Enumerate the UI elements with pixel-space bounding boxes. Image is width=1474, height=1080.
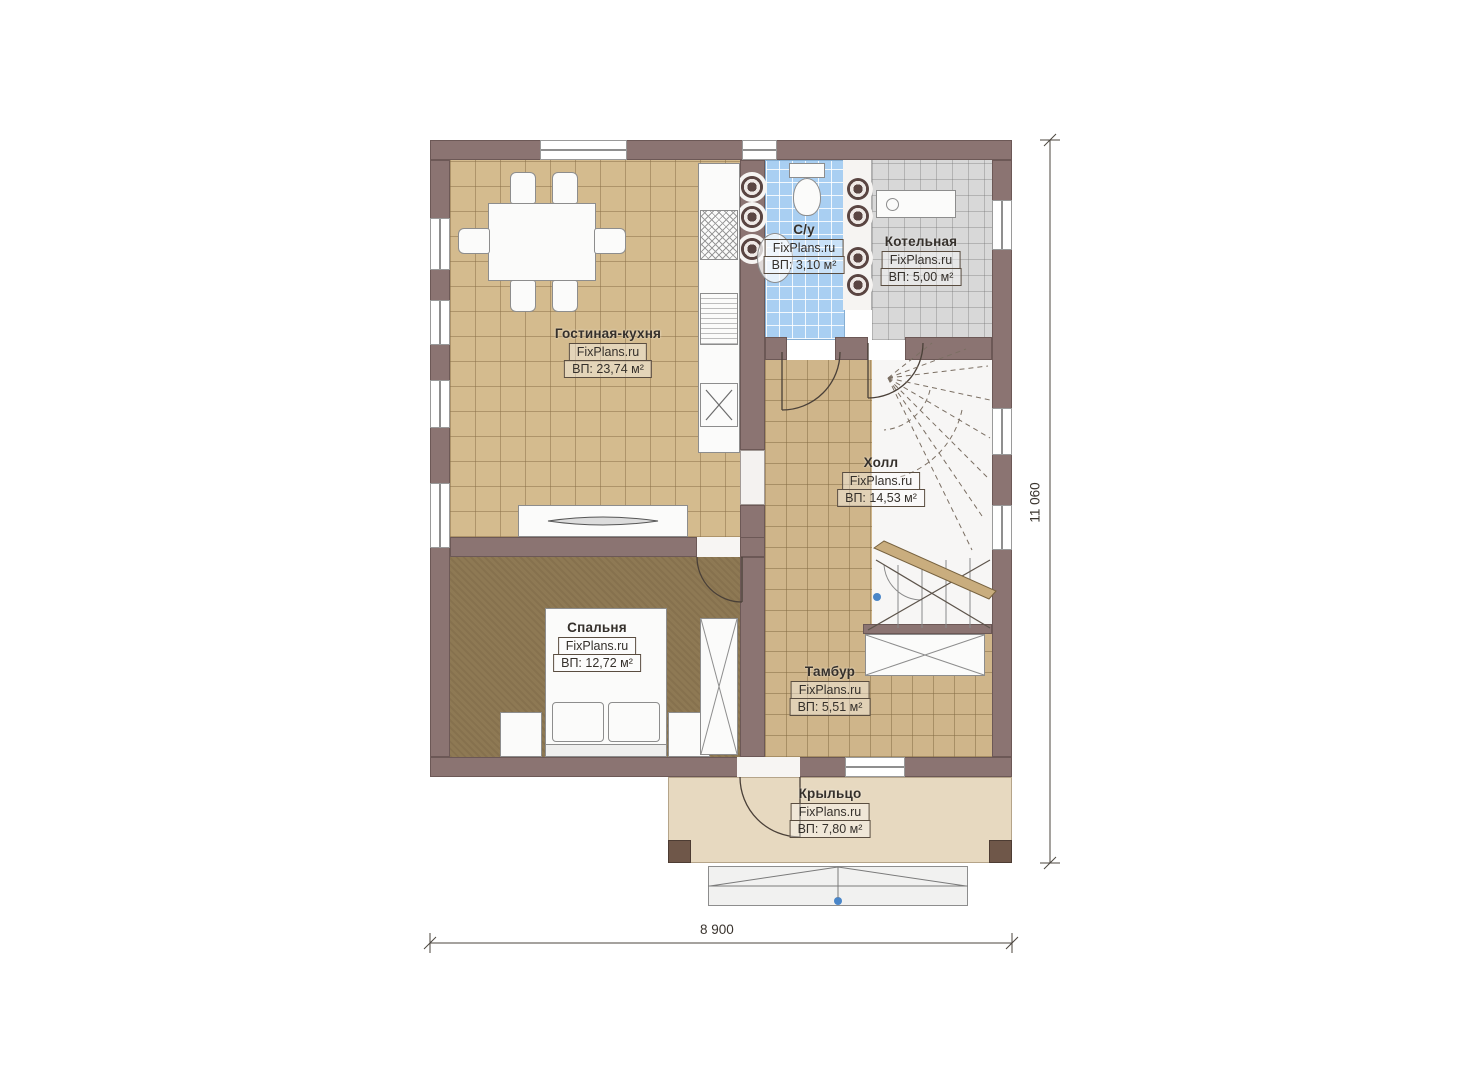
bedroom-door-opening [697,537,740,557]
room-name: Тамбур [805,664,855,679]
toilet-icon [793,178,821,216]
room-name: Холл [864,455,899,470]
wall-segment [863,624,992,634]
wardrobe [700,618,738,755]
entrance-door-opening [737,757,800,777]
room-area: ВП: 12,72 м² [553,654,641,672]
stove-icon [700,210,738,260]
flue-icon [847,178,869,200]
chair [552,172,578,204]
window [992,408,1012,455]
room-watermark: FixPlans.ru [558,637,637,655]
room-area: ВП: 7,80 м² [790,820,871,838]
room-watermark: FixPlans.ru [765,239,844,257]
window [845,757,905,777]
chair [510,280,536,312]
kitchen-sink [700,383,738,427]
room-name: Спальня [567,620,627,635]
room-label-bedroom: Спальня FixPlans.ru ВП: 12,72 м² [553,620,641,672]
dining-table [488,203,596,281]
tv-stand [518,505,688,537]
room-name: Крыльцо [799,786,862,801]
room-area: ВП: 14,53 м² [837,489,925,507]
room-label-living-kitchen: Гостиная-кухня FixPlans.ru ВП: 23,74 м² [555,326,661,378]
entry-steps [708,866,968,906]
flue-icon [741,206,763,228]
window [742,140,777,160]
wall-segment [905,337,992,360]
porch-post [989,840,1012,863]
cased-opening [740,450,765,505]
room-watermark: FixPlans.ru [882,251,961,269]
porch-post [668,840,691,863]
room-label-porch: Крыльцо FixPlans.ru ВП: 7,80 м² [790,786,871,838]
dimension-width-label: 8 900 [700,922,734,937]
room-area: ВП: 5,00 м² [881,268,962,286]
window [430,380,450,428]
flue-icon [847,205,869,227]
closet [865,634,985,676]
window [992,200,1012,250]
wall-segment [740,557,765,757]
wall-segment [430,140,1012,160]
chair [510,172,536,204]
flue-icon [847,247,869,269]
room-area: ВП: 5,51 м² [790,698,871,716]
chair [552,280,578,312]
chair [458,228,490,254]
wall-segment [765,337,787,360]
fridge-icon [700,293,738,345]
window [430,483,450,548]
window [992,505,1012,550]
wall-segment [430,757,1012,777]
wall-segment [835,337,868,360]
room-name: С/у [793,222,815,237]
room-watermark: FixPlans.ru [569,343,648,361]
room-name: Котельная [885,234,957,249]
window [430,218,450,270]
nightstand [500,712,542,757]
flue-icon [741,176,763,198]
wall-segment [740,537,765,557]
flue-icon [847,274,869,296]
bed-headboard [545,744,667,757]
room-label-bathroom: С/у FixPlans.ru ВП: 3,10 м² [764,222,845,274]
dimension-height-label: 11 060 [1028,482,1043,522]
pillow [608,702,660,742]
room-area: ВП: 3,10 м² [764,256,845,274]
boiler-burner-icon [886,198,899,211]
pillow [552,702,604,742]
room-name: Гостиная-кухня [555,326,661,341]
floor-plan: Гостиная-кухня FixPlans.ru ВП: 23,74 м² … [0,0,1474,1080]
room-watermark: FixPlans.ru [842,472,921,490]
window [540,140,627,160]
room-label-hall: Холл FixPlans.ru ВП: 14,53 м² [837,455,925,507]
wall-segment [450,537,697,557]
chair [594,228,626,254]
room-label-vestibule: Тамбур FixPlans.ru ВП: 5,51 м² [790,664,871,716]
room-label-boiler: Котельная FixPlans.ru ВП: 5,00 м² [881,234,962,286]
room-watermark: FixPlans.ru [791,681,870,699]
room-watermark: FixPlans.ru [791,803,870,821]
toilet-icon [789,163,825,178]
wall-segment [740,160,765,450]
window [430,300,450,345]
room-area: ВП: 23,74 м² [564,360,652,378]
